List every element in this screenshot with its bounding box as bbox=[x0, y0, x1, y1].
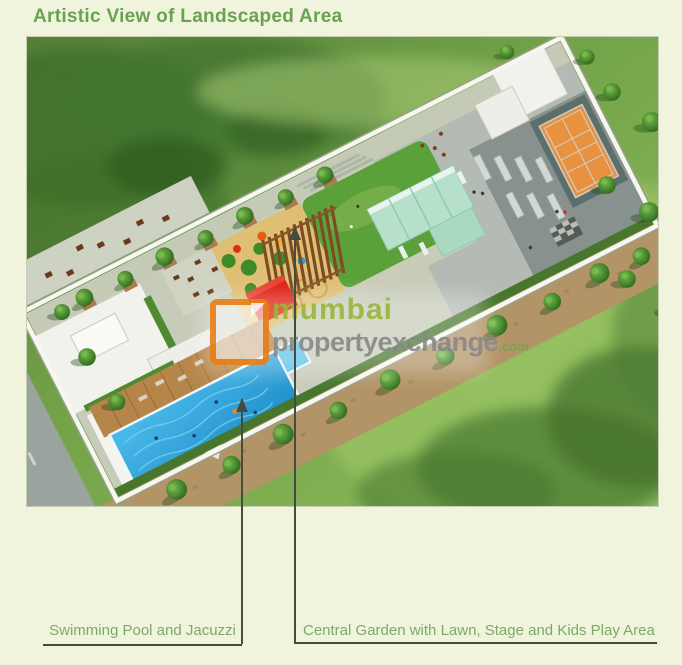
page-title: Artistic View of Landscaped Area bbox=[33, 6, 342, 28]
arrow-up-icon-garden bbox=[289, 226, 301, 240]
watermark-domain: propertyexchange bbox=[272, 329, 498, 356]
landscape-render-image: mumbai propertyexchange.com bbox=[27, 37, 658, 506]
watermark-tld: .com bbox=[498, 340, 528, 353]
arrow-up-icon-pool bbox=[236, 398, 248, 412]
landscape-scene bbox=[27, 37, 658, 506]
callout-label-garden: Central Garden with Lawn, Stage and Kids… bbox=[295, 620, 657, 644]
watermark-text: mumbai propertyexchange.com bbox=[272, 295, 528, 356]
watermark-logo-icon bbox=[210, 299, 269, 365]
callout-label-pool: Swimming Pool and Jacuzzi bbox=[43, 620, 242, 646]
watermark: mumbai propertyexchange.com bbox=[202, 292, 494, 376]
callout-line-garden bbox=[294, 227, 296, 644]
watermark-brand: mumbai bbox=[272, 295, 528, 325]
page-fold-icon bbox=[251, 303, 265, 317]
callout-line-pool bbox=[241, 399, 243, 644]
